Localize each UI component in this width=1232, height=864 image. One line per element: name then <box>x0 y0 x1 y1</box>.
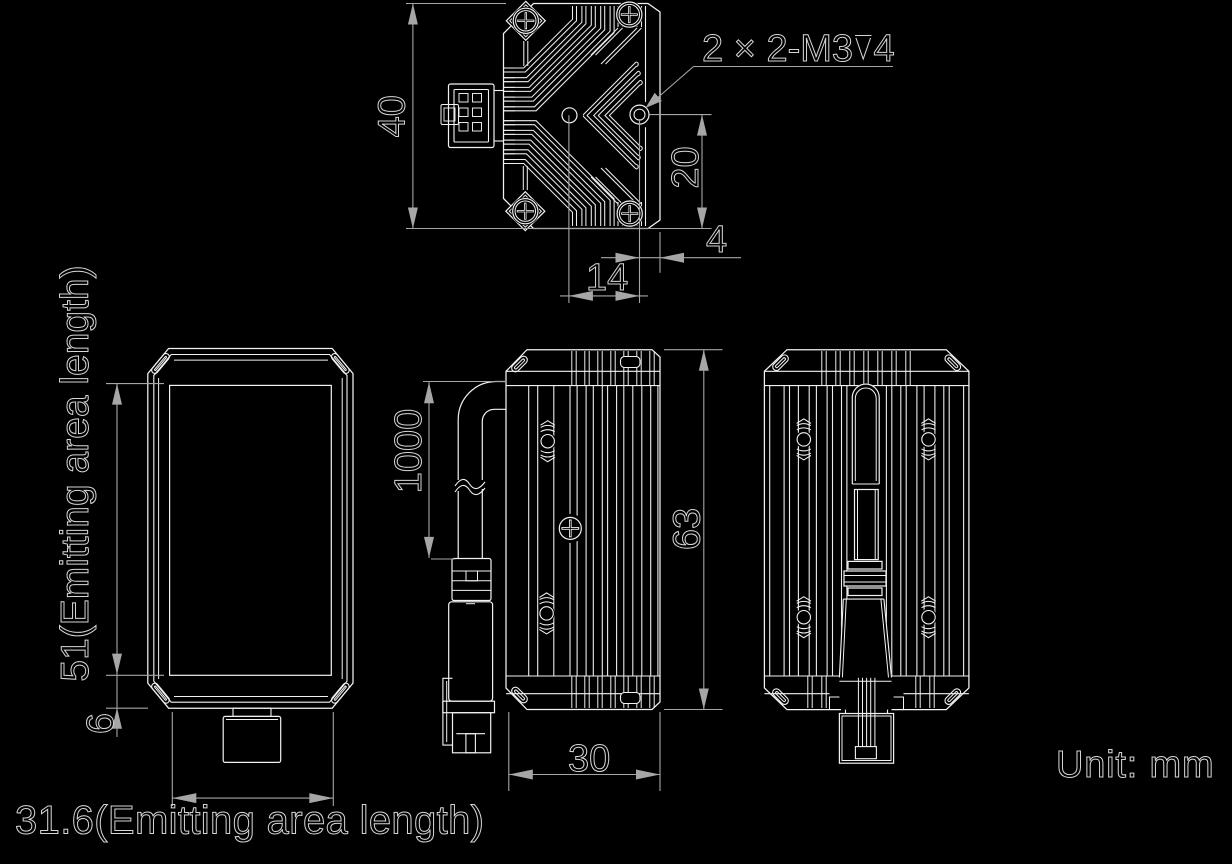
svg-text:4: 4 <box>874 28 895 70</box>
svg-text:Unit: mm: Unit: mm <box>1056 744 1214 786</box>
svg-text:40: 40 <box>372 95 414 137</box>
svg-text:2 × 2-M3: 2 × 2-M3 <box>702 28 853 70</box>
svg-text:4: 4 <box>706 219 727 261</box>
svg-text:14: 14 <box>586 257 628 299</box>
svg-text:51(Emitting area length): 51(Emitting area length) <box>54 265 97 681</box>
svg-text:31.6(Emitting area length): 31.6(Emitting area length) <box>15 799 484 843</box>
svg-text:1000: 1000 <box>388 409 430 494</box>
svg-text:20: 20 <box>665 146 707 188</box>
svg-text:30: 30 <box>568 738 610 780</box>
svg-text:63: 63 <box>667 508 709 550</box>
svg-text:6: 6 <box>80 713 122 734</box>
